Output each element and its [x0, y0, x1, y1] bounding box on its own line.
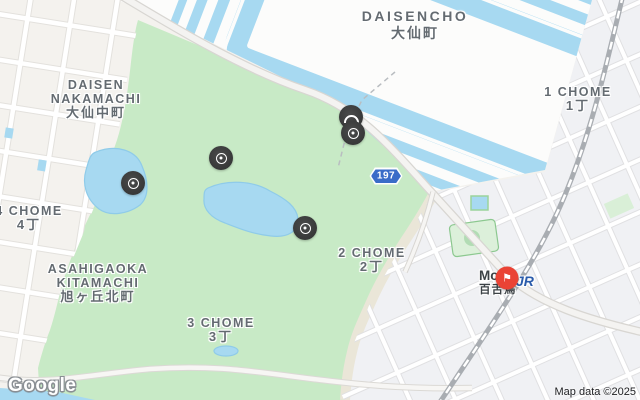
station-flag-marker[interactable]: ⚑	[496, 267, 519, 290]
flag-icon: ⚑	[502, 272, 512, 285]
pool	[471, 196, 488, 210]
poi-marker[interactable]	[293, 216, 317, 240]
bullseye-icon	[128, 178, 139, 189]
google-logo[interactable]: Google	[8, 375, 76, 397]
map-canvas[interactable]	[0, 0, 640, 400]
route-197-badge: 197	[370, 168, 403, 185]
poi-marker[interactable]	[209, 146, 233, 170]
poi-marker[interactable]	[121, 171, 145, 195]
map-data-attribution: Map data ©2025	[555, 386, 637, 398]
route-number: 197	[371, 169, 401, 183]
bullseye-icon	[348, 128, 359, 139]
poi-marker[interactable]	[341, 121, 365, 145]
bullseye-icon	[300, 223, 311, 234]
map-viewport[interactable]: DAISENCHO 大仙町 DAISEN NAKAMACHI 大仙中町 4 CH…	[0, 0, 640, 400]
jr-logo: JR	[516, 273, 534, 289]
bullseye-icon	[216, 153, 227, 164]
